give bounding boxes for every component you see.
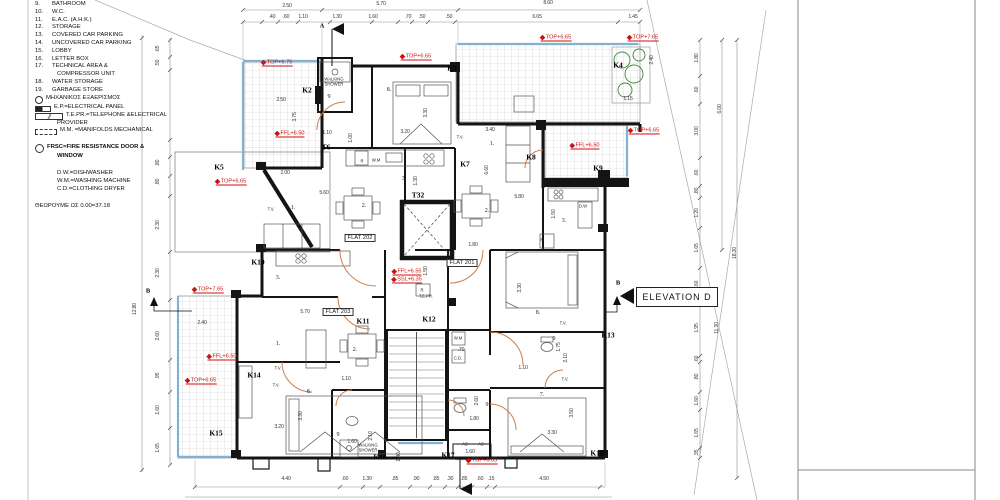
legend-row: E.P.=ELECTRICAL PANEL (35, 104, 195, 112)
legend-row: 11.E.A.C. (A.H.K.) (35, 17, 195, 25)
legend-row (35, 135, 195, 144)
elevation-d-label: ELEVATION D (636, 287, 718, 307)
legend-row (35, 161, 195, 170)
legend-row: ΘΕΩΡΟΥΜΕ ΩΣ 0.00=37.18 (35, 203, 195, 211)
legend-row: WINDOW (35, 153, 195, 161)
legend: 9.BATHROOM10.W.C.11.E.A.C. (A.H.K.)12.ST… (35, 1, 195, 210)
elevation-arrow-icon (620, 288, 634, 304)
ep-icon (35, 106, 51, 112)
legend-row: 12.STORAGE (35, 24, 195, 32)
floor-plan-sheet: 9.BATHROOM10.W.C.11.E.A.C. (A.H.K.)12.ST… (0, 0, 1000, 500)
legend-row: 15.LOBBY (35, 48, 195, 56)
legend-row: D.W.=DISHWASHER (35, 170, 195, 178)
right-sheet-panel (798, 0, 975, 500)
legend-row: PROVIDER (35, 120, 195, 128)
fan-icon (35, 96, 43, 104)
legend-row: FRSC=FIRE RESISTANCE DOOR & (35, 144, 195, 153)
mm-icon (35, 129, 57, 135)
legend-row (35, 194, 195, 203)
legend-row: 16.LETTER BOX (35, 56, 195, 64)
legend-row: M.M. =MANIFOLDS MECHANICAL (35, 127, 195, 135)
legend-row: 13.COVERED CAR PARKING (35, 32, 195, 40)
legend-row: 14.UNCOVERED CAR PARKING (35, 40, 195, 48)
staircase (387, 330, 446, 440)
legend-row: COMPRESSOR UNIT (35, 71, 195, 79)
legend-row: 19.GARBAGE STORE (35, 87, 195, 95)
tepr-icon (35, 113, 63, 120)
frsc-icon (35, 144, 44, 153)
legend-row: T.E.PR.=TELEPHONE &ELECTRICAL (35, 112, 195, 120)
legend-row: W.M.=WASHING MACHINE (35, 178, 195, 186)
legend-list: 9.BATHROOM10.W.C.11.E.A.C. (A.H.K.)12.ST… (35, 1, 195, 210)
legend-row: 18.WATER STORAGE (35, 79, 195, 87)
legend-row: 10.W.C. (35, 9, 195, 17)
legend-row: C.D.=CLOTHING DRYER (35, 186, 195, 194)
legend-row: 9.BATHROOM (35, 1, 195, 9)
legend-row: 17.TECHNICAL AREA & (35, 63, 195, 71)
legend-row: ΜΗΧΑΝΙΚΟΣ ΕΞΑΕΡΙΣΜΟΣ (35, 95, 195, 104)
